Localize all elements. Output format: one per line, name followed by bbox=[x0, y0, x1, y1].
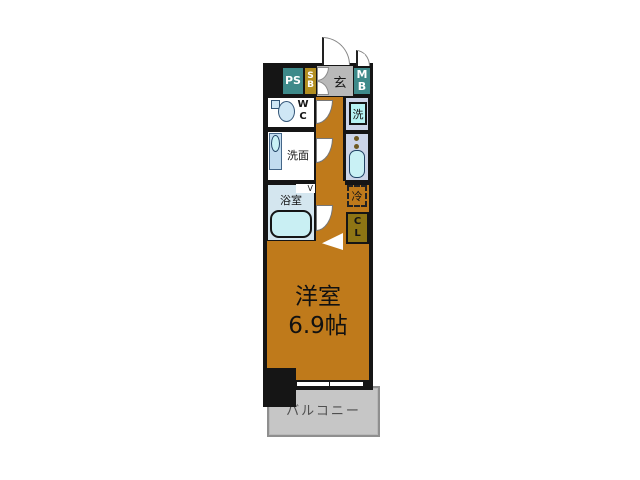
washroom-label: 洗面 bbox=[282, 147, 314, 163]
closet: CL bbox=[346, 212, 369, 244]
closet-label: CL bbox=[352, 216, 364, 240]
main-room-size: 6.9帖 bbox=[263, 312, 373, 341]
balcony-wall-block bbox=[263, 368, 296, 407]
bathtub-icon bbox=[270, 210, 312, 238]
refrigerator-space: 冷 bbox=[347, 185, 367, 207]
washer-label: 洗 bbox=[353, 106, 364, 122]
bathroom-folding-door-mark: V bbox=[296, 184, 315, 193]
pipe-space-box: PS bbox=[283, 68, 303, 94]
entry-door-arc-icon bbox=[322, 37, 350, 65]
stove-burner-icon bbox=[354, 144, 359, 149]
meter-box-door-arc-icon bbox=[356, 50, 370, 66]
main-room-name: 洋室 bbox=[263, 283, 373, 312]
refrigerator-label: 冷 bbox=[352, 188, 363, 204]
shoe-box: SB bbox=[305, 68, 316, 94]
meter-box-label: MB bbox=[354, 69, 370, 92]
balcony-window-icon bbox=[297, 380, 363, 388]
toilet-label: WC bbox=[296, 99, 310, 123]
entrance-label: 玄 bbox=[333, 72, 346, 91]
bathroom-label: 浴室 bbox=[269, 192, 313, 208]
stove-burner-icon bbox=[354, 136, 359, 141]
pipe-space-label: PS bbox=[283, 75, 303, 87]
main-room-label: 洋室 6.9帖 bbox=[263, 283, 373, 341]
meter-box: MB bbox=[354, 68, 370, 94]
window-center-tick bbox=[329, 382, 330, 386]
floor-plan: バルコニー PS SB 玄 MB WC 洗面 浴室 V 洗 bbox=[0, 0, 640, 480]
shoe-box-label: SB bbox=[305, 72, 316, 91]
toilet-bowl-icon bbox=[278, 101, 295, 122]
washbasin-icon bbox=[271, 135, 280, 152]
kitchen-sink-icon bbox=[349, 150, 365, 178]
washing-machine-icon: 洗 bbox=[349, 102, 367, 125]
